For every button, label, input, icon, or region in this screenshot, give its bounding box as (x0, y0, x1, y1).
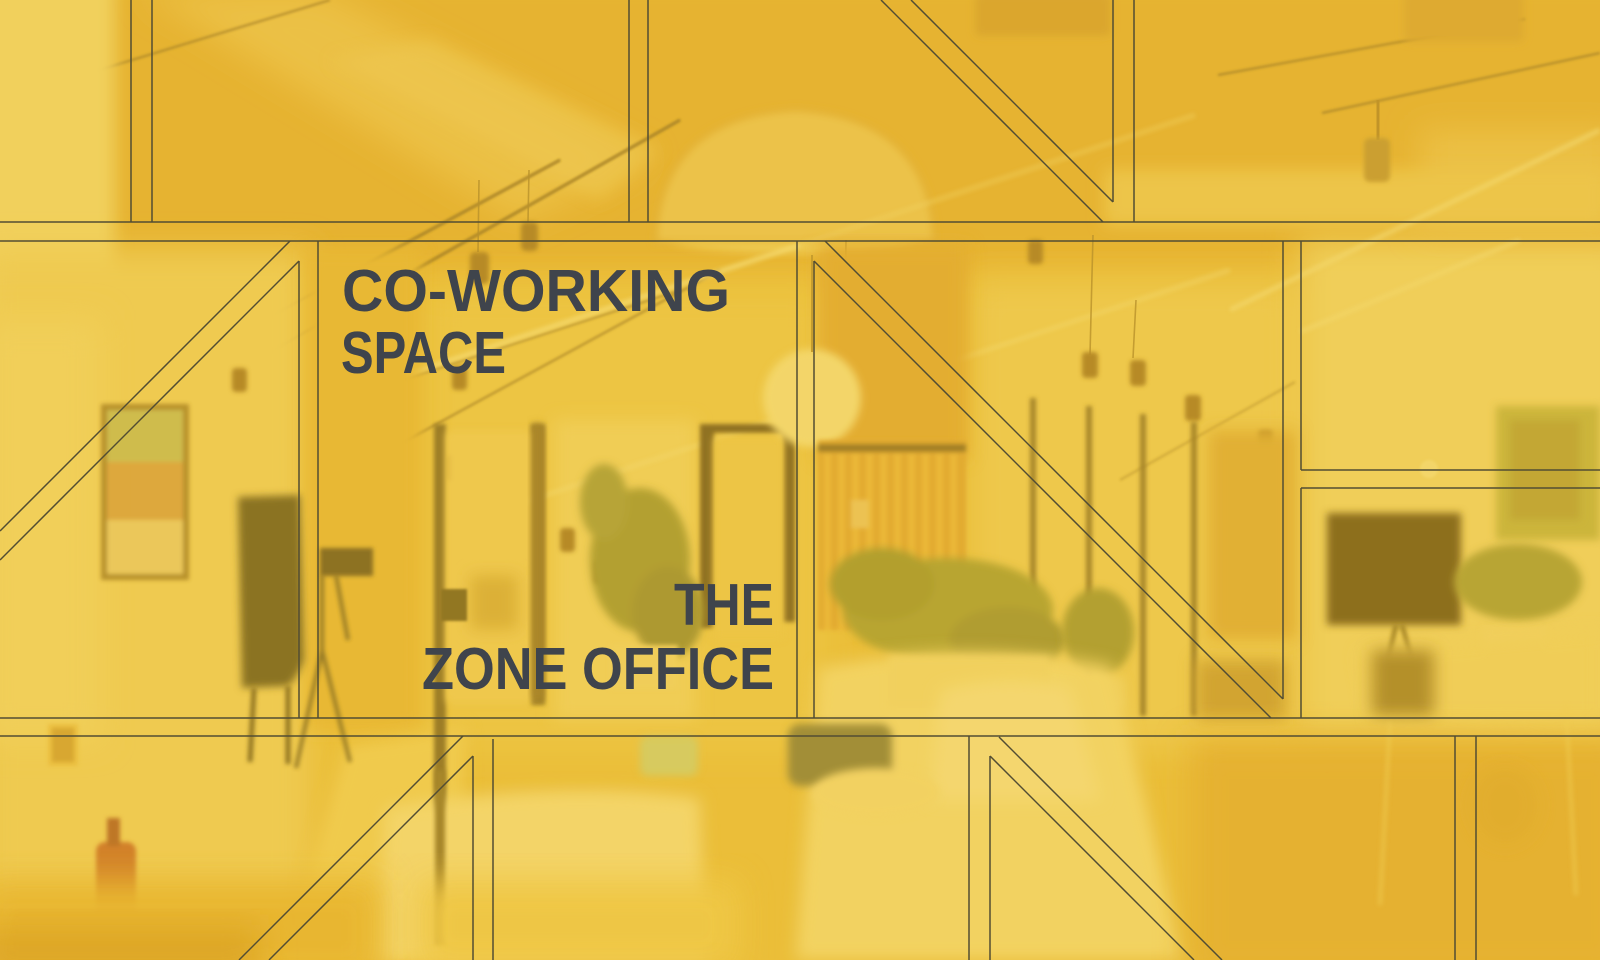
svg-text:CO-WORKING: CO-WORKING (342, 258, 730, 324)
svg-text:SPACE: SPACE (341, 320, 506, 386)
svg-text:ZONE OFFICE: ZONE OFFICE (422, 636, 774, 702)
svg-text:THE: THE (674, 572, 774, 638)
